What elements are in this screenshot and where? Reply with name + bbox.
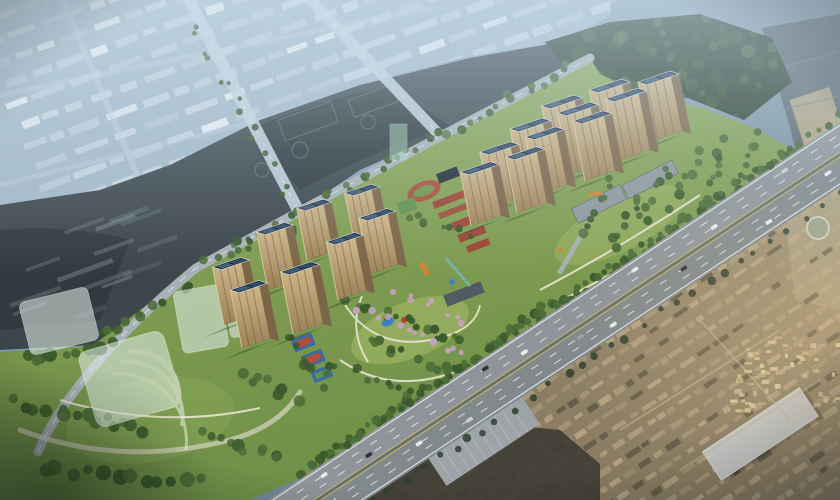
render-scene	[0, 0, 840, 500]
vignette	[0, 0, 840, 500]
aerial-render-image	[0, 0, 840, 500]
